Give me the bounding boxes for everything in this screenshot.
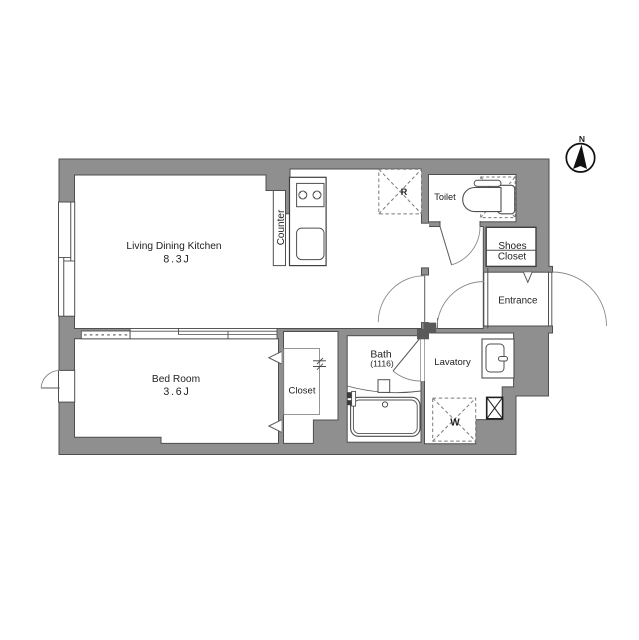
svg-text:Entrance: Entrance [498,295,538,306]
svg-text:Counter: Counter [276,209,287,245]
svg-text:Closet: Closet [498,251,527,262]
svg-text:Closet: Closet [289,386,316,397]
svg-text:Toilet: Toilet [434,192,456,202]
svg-text:Shoes: Shoes [498,241,526,252]
svg-text:(1116): (1116) [370,359,394,369]
svg-text:R: R [401,187,408,197]
svg-text:3.6J: 3.6J [163,386,190,398]
svg-text:Living Dining Kitchen: Living Dining Kitchen [126,241,221,252]
svg-text:Bed Room: Bed Room [152,374,200,385]
svg-text:Lavatory: Lavatory [434,357,471,368]
svg-text:8.3J: 8.3J [163,254,190,266]
svg-text:N: N [579,134,585,144]
svg-text:W: W [450,418,460,429]
